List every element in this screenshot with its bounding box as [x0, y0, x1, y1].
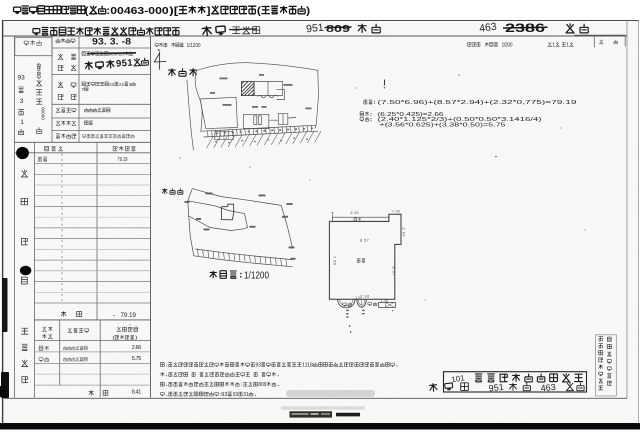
svg-text:): ) [306, 6, 310, 17]
svg-text:]: ] [207, 6, 211, 17]
svg-text::00463-000: :00463-000 [106, 6, 169, 17]
svg-text:)[: )[ [169, 6, 179, 17]
